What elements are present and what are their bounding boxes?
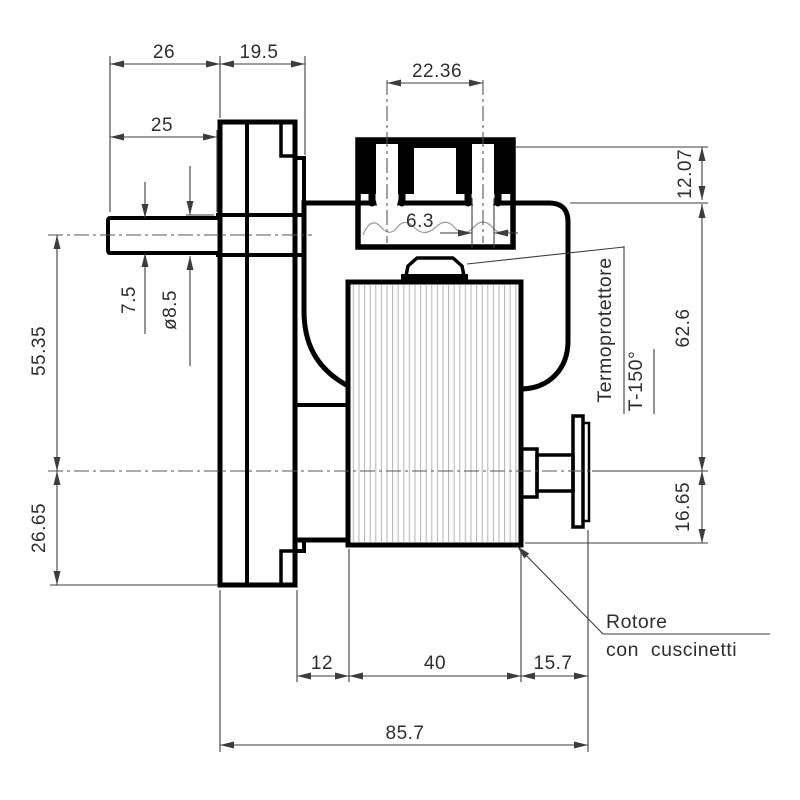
- dim-label-85.7: 85.7: [386, 723, 425, 744]
- note-rotor: Rotore con cuscinetti: [517, 546, 770, 661]
- thermal-protector-label-line1: Termoprotettore: [594, 257, 616, 402]
- dim-label-25: 25: [151, 115, 173, 136]
- dim-label-26: 26: [153, 42, 175, 63]
- rotor-hatching: [351, 285, 518, 542]
- dim-label-19.5: 19.5: [240, 42, 279, 63]
- thermal-protector-label-line2: T-150°: [625, 351, 647, 412]
- dim-label-62.6: 62.6: [673, 309, 694, 348]
- dim-label-40: 40: [424, 653, 446, 674]
- dim-label-12: 12: [311, 653, 333, 674]
- gasket-wave: [363, 222, 509, 235]
- rotor-stack: [348, 258, 521, 545]
- dim-label-6.3: 6.3: [406, 211, 434, 232]
- rotor-label-line2: con cuscinetti: [606, 639, 737, 661]
- cap-base-bar: [401, 274, 468, 283]
- drawing-svg: 26 19.5 25 22.36 6.3 12 40 15.7 85.7 12.…: [0, 0, 800, 800]
- rear-shaft-hub: [537, 455, 573, 491]
- gearbox-outline: [220, 122, 295, 585]
- dim-label-26.65: 26.65: [29, 503, 50, 553]
- dim-label-7.5: 7.5: [119, 286, 140, 314]
- dim-label-12.07: 12.07: [675, 149, 696, 199]
- gearbox-housing: [220, 122, 304, 585]
- rotor-label-line1: Rotore: [606, 611, 668, 633]
- dim-label-15.7: 15.7: [534, 653, 573, 674]
- dim-label-22.36: 22.36: [412, 61, 462, 82]
- leader-line: [517, 546, 603, 634]
- dim-label-16.65: 16.65: [673, 482, 694, 532]
- terminal-block-center-slot: [414, 148, 456, 194]
- dim-label-diameter-8.5: ø8.5: [160, 290, 181, 330]
- technical-drawing-gearmotor: 26 19.5 25 22.36 6.3 12 40 15.7 85.7 12.…: [0, 0, 800, 800]
- dim-label-55.35: 55.35: [29, 326, 50, 376]
- terminal-block: [358, 140, 513, 247]
